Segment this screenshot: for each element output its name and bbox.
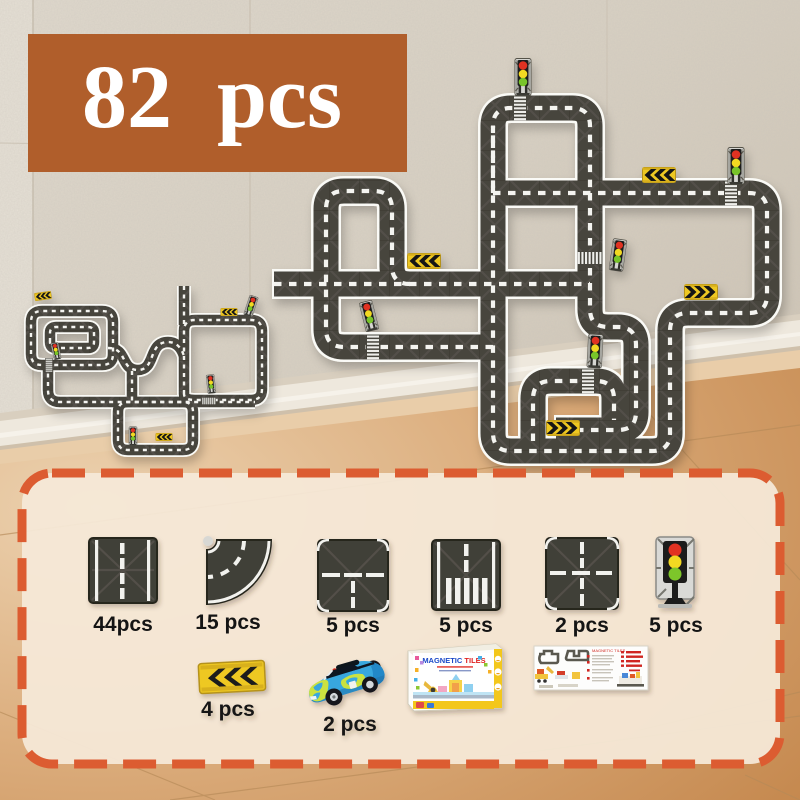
svg-text:2 pcs: 2 pcs	[555, 614, 609, 637]
svg-text:2 pcs: 2 pcs	[323, 713, 377, 736]
svg-text:MAGNETIC TILES: MAGNETIC TILES	[422, 656, 485, 665]
svg-text:82 pcs: 82 pcs	[82, 48, 342, 147]
svg-text:MAGNETIC TILES: MAGNETIC TILES	[592, 648, 626, 653]
svg-text:5 pcs: 5 pcs	[649, 614, 703, 637]
svg-text:4 pcs: 4 pcs	[201, 698, 255, 721]
svg-text:44pcs: 44pcs	[93, 613, 153, 636]
svg-text:5 pcs: 5 pcs	[326, 614, 380, 637]
svg-text:5 pcs: 5 pcs	[439, 614, 493, 637]
svg-text:15 pcs: 15 pcs	[195, 611, 260, 634]
